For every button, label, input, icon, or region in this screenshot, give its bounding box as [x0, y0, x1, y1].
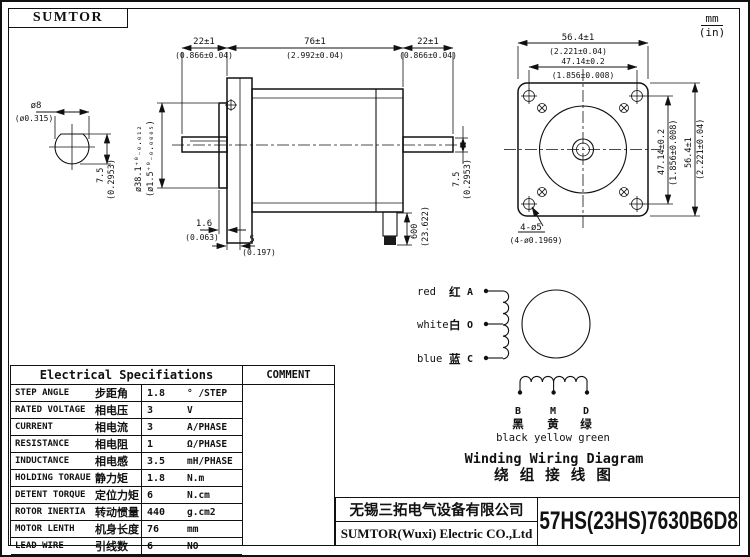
terminal-dot-m — [551, 390, 555, 394]
spec-unit: mm — [187, 524, 198, 535]
dim-shaft-flat-in: (0.2953) — [107, 159, 117, 200]
front-shaft — [182, 137, 227, 152]
spec-name-en: CURRENT — [15, 422, 95, 432]
dim-step-in: (0.197) — [242, 248, 276, 257]
terminal-b-cn: 黑 — [512, 417, 524, 431]
dim-mounting-holes-mm: 4-ø5 — [520, 223, 542, 233]
part-number-cell: 57HS(23HS)7630B6D8 — [538, 498, 739, 545]
dim-front-shaft-length-mm: 22±1 — [193, 37, 215, 47]
spec-value: 1.8 — [142, 388, 187, 399]
spec-name-cn: 转动惯量 — [95, 504, 139, 520]
spec-unit: V — [187, 405, 193, 416]
comment-body — [243, 385, 334, 545]
motor-front-view: 56.4±1 (2.221±0.04) 47.14±0.2 (1.856±0.0… — [504, 33, 706, 245]
dim-face-width-mm: 56.4±1 — [562, 33, 595, 43]
dim-rear-shaft-length-in: (0.866±0.04) — [399, 51, 457, 60]
motor-side-view: ø38.1⁺⁰₋₀.₀₁₂ (ø1.5⁺⁰₋₀.₀₀₀₅) — [134, 37, 473, 257]
spec-name-en: INDUCTANCE — [15, 456, 95, 466]
lead-red-en: red — [417, 286, 436, 298]
dim-shaft-diameter-in: (ø0.315) — [15, 114, 54, 123]
terminal-dot-a — [484, 289, 488, 293]
dim-cable-mm: 600 — [410, 224, 420, 239]
lead-red-cn: 红 — [449, 285, 461, 299]
dim-body-length-in: (2.992±0.04) — [286, 51, 344, 60]
spec-name-en: MOTOR LENTH — [15, 524, 95, 534]
motor-body — [252, 89, 403, 212]
dim-rear-flat-mm: 7.5 — [452, 172, 462, 187]
spec-unit: mH/PHASE — [187, 456, 233, 467]
rotor-circle — [522, 290, 590, 358]
spec-value: 6 — [142, 490, 187, 501]
dim-rear-flat-in: (0.2953) — [463, 159, 473, 200]
spec-value: 6 — [142, 541, 187, 552]
terminal-dot-d — [585, 390, 589, 394]
table-row: RATED VOLTAGE相电压 3V — [11, 402, 242, 419]
table-row: HOLDING TORAUE静力矩 1.8N.m — [11, 470, 242, 487]
terminal-dot-o — [484, 322, 488, 326]
spec-name-cn: 相电感 — [95, 453, 128, 469]
dim-face-height-in: (2.221±0.04) — [696, 119, 706, 180]
dim-hole-spacing-v-mm: 47.14±0.2 — [657, 129, 667, 175]
spec-unit: ° /STEP — [187, 388, 227, 399]
spec-name-en: DETENT TORQUE — [15, 490, 95, 500]
table-row: CURRENT相电流 3A/PHASE — [11, 419, 242, 436]
spec-unit: A/PHASE — [187, 422, 227, 433]
pilot-boss — [219, 103, 227, 188]
spec-name-cn: 相电流 — [95, 419, 128, 435]
shaft-section-view: ø8 (ø0.315) 7.5 (0.2953) — [15, 101, 117, 200]
spec-name-cn: 相电压 — [95, 402, 128, 418]
spec-name-cn: 静力矩 — [95, 470, 128, 486]
spec-name-en: RATED VOLTAGE — [15, 405, 95, 415]
wiring-diagram-title-en: Winding Wiring Diagram — [465, 451, 644, 467]
terminal-d-cn: 绿 — [580, 417, 592, 431]
cable-connector — [384, 236, 396, 245]
comment-column: COMMENT — [243, 366, 334, 545]
terminal-m-label: M — [550, 406, 556, 417]
dim-shaft-flat-mm: 7.5 — [96, 168, 106, 183]
spec-name-cn: 步距角 — [95, 385, 128, 401]
dim-face-height-mm: 56.4±1 — [684, 137, 694, 168]
terminal-colors-en: black yellow green — [496, 432, 610, 444]
dim-rear-shaft-length-mm: 22±1 — [417, 37, 439, 47]
spec-value: 1.8 — [142, 473, 187, 484]
dim-boss-mm: 1.6 — [196, 219, 212, 229]
dim-step-mm: 5 — [249, 235, 254, 245]
terminal-dot-c — [484, 356, 488, 360]
spec-name-en: HOLDING TORAUE — [15, 473, 95, 483]
lead-white-cn: 白 — [449, 318, 461, 332]
dim-hole-spacing-v-in: (1.856±0.008) — [669, 119, 679, 186]
table-row: MOTOR LENTH机身长度 76mm — [11, 521, 242, 538]
spec-name-cn: 引线数 — [95, 538, 128, 554]
dim-mounting-holes-in: (4-ø0.1969) — [510, 236, 563, 245]
table-row: RESISTANCE相电阻 1Ω/PHASE — [11, 436, 242, 453]
spec-unit: N.cm — [187, 490, 210, 501]
rear-shaft — [403, 137, 453, 152]
table-row: LEAD WIRE引线数 6NO — [11, 538, 242, 555]
company-cell: 无锡三拓电气设备有限公司 SUMTOR(Wuxi) Electric CO.,L… — [336, 498, 538, 545]
spec-table-header: Electrical Specifiations — [11, 366, 242, 385]
spec-value: 1 — [142, 439, 187, 450]
spec-name-en: STEP ANGLE — [15, 388, 95, 398]
table-row: STEP ANGLE步距角 1.8° /STEP — [11, 385, 242, 402]
dim-body-length-mm: 76±1 — [304, 37, 326, 47]
spec-name-cn: 相电阻 — [95, 436, 128, 452]
lead-white-en: white — [417, 319, 449, 331]
spec-table-main: Electrical Specifiations STEP ANGLE步距角 1… — [11, 366, 243, 545]
lead-white-id: O — [467, 320, 473, 331]
dim-pilot-in: (ø1.5⁺⁰₋₀.₀₀₀₅) — [146, 120, 156, 197]
spec-unit: g.cm2 — [187, 507, 216, 518]
phase-coil-bottom — [520, 376, 587, 382]
spec-name-en: ROTOR INERTIA — [15, 507, 95, 517]
terminal-dot-b — [518, 390, 522, 394]
spec-table: Electrical Specifiations STEP ANGLE步距角 1… — [10, 365, 335, 546]
dim-hole-spacing-h-in: (1.856±0.008) — [552, 71, 615, 80]
dim-boss-in: (0.063) — [185, 233, 219, 242]
title-block: 无锡三拓电气设备有限公司 SUMTOR(Wuxi) Electric CO.,L… — [335, 497, 740, 546]
spec-name-en: RESISTANCE — [15, 439, 95, 449]
dim-shaft-diameter-mm: ø8 — [31, 101, 42, 111]
table-row: ROTOR INERTIA转动惯量 440g.cm2 — [11, 504, 242, 521]
company-name-cn: 无锡三拓电气设备有限公司 — [336, 498, 537, 522]
wiring-diagram: red 红 A white 白 O blue 蓝 C B M D 黑 黄 绿 b… — [417, 285, 643, 484]
part-number: 57HS(23HS)7630B6D8 — [539, 507, 738, 536]
spec-value: 3.5 — [142, 456, 187, 467]
dim-face-width-in: (2.221±0.04) — [549, 47, 607, 56]
lead-blue-en: blue — [417, 353, 442, 365]
terminal-b-label: B — [515, 406, 521, 417]
table-row: INDUCTANCE相电感 3.5mH/PHASE — [11, 453, 242, 470]
comment-header: COMMENT — [243, 366, 334, 385]
spec-unit: NO — [187, 541, 198, 552]
table-row: DETENT TORQUE定位力矩 6N.cm — [11, 487, 242, 504]
dim-hole-spacing-h-mm: 47.14±0.2 — [561, 57, 605, 66]
company-name-en: SUMTOR(Wuxi) Electric CO.,Ltd — [336, 522, 537, 545]
dim-pilot-mm: ø38.1⁺⁰₋₀.₀₁₂ — [134, 125, 144, 192]
phase-coil-left — [503, 291, 509, 359]
lead-red-id: A — [467, 287, 473, 298]
lead-blue-id: C — [467, 354, 473, 365]
spec-unit: N.m — [187, 473, 204, 484]
motor-datasheet-page: SUMTOR mm (in) ø8 (ø0.315) — [0, 0, 750, 557]
spec-value: 440 — [142, 507, 187, 518]
dim-cable-in: (23.622) — [421, 206, 431, 247]
wiring-diagram-title-cn: 绕 组 接 线 图 — [494, 466, 614, 484]
cable-sheath — [383, 212, 397, 236]
spec-name-cn: 机身长度 — [95, 521, 139, 537]
spec-value: 3 — [142, 405, 187, 416]
dim-front-shaft-length-in: (0.866±0.04) — [175, 51, 233, 60]
spec-name-en: LEAD WIRE — [15, 541, 95, 551]
spec-unit: Ω/PHASE — [187, 439, 227, 450]
lead-blue-cn: 蓝 — [449, 352, 461, 366]
spec-value: 76 — [142, 524, 187, 535]
spec-name-cn: 定位力矩 — [95, 487, 139, 503]
terminal-m-cn: 黄 — [547, 417, 559, 431]
terminal-d-label: D — [583, 406, 589, 417]
spec-value: 3 — [142, 422, 187, 433]
